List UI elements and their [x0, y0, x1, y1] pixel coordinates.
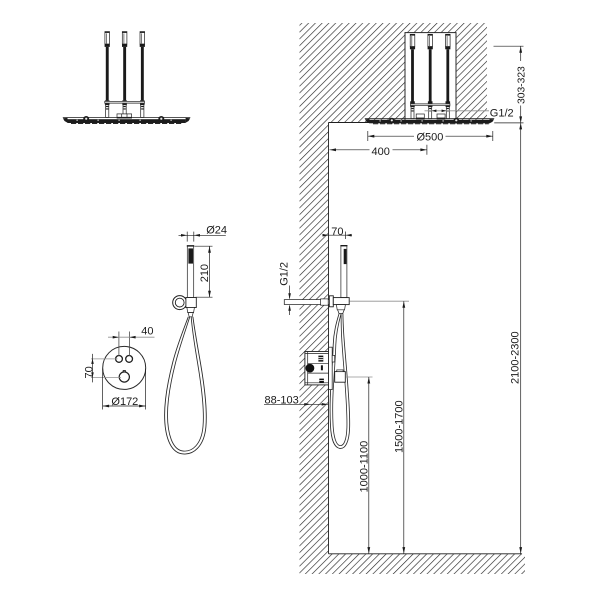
svg-text:Ø24: Ø24 — [206, 225, 227, 237]
svg-text:G1/2: G1/2 — [279, 262, 291, 286]
svg-text:1500-1700: 1500-1700 — [393, 400, 405, 453]
svg-text:Ø172: Ø172 — [111, 396, 138, 408]
svg-text:70: 70 — [331, 226, 343, 238]
svg-text:400: 400 — [372, 146, 390, 158]
svg-text:70: 70 — [83, 366, 95, 378]
svg-text:2100-2300: 2100-2300 — [510, 331, 522, 384]
svg-text:210: 210 — [199, 264, 211, 282]
svg-text:Ø500: Ø500 — [417, 131, 444, 143]
svg-text:G1/2: G1/2 — [490, 107, 514, 119]
svg-text:1000-1100: 1000-1100 — [358, 441, 370, 493]
svg-text:303-323: 303-323 — [516, 66, 527, 104]
svg-text:40: 40 — [141, 326, 153, 338]
svg-text:88-103: 88-103 — [265, 394, 299, 406]
